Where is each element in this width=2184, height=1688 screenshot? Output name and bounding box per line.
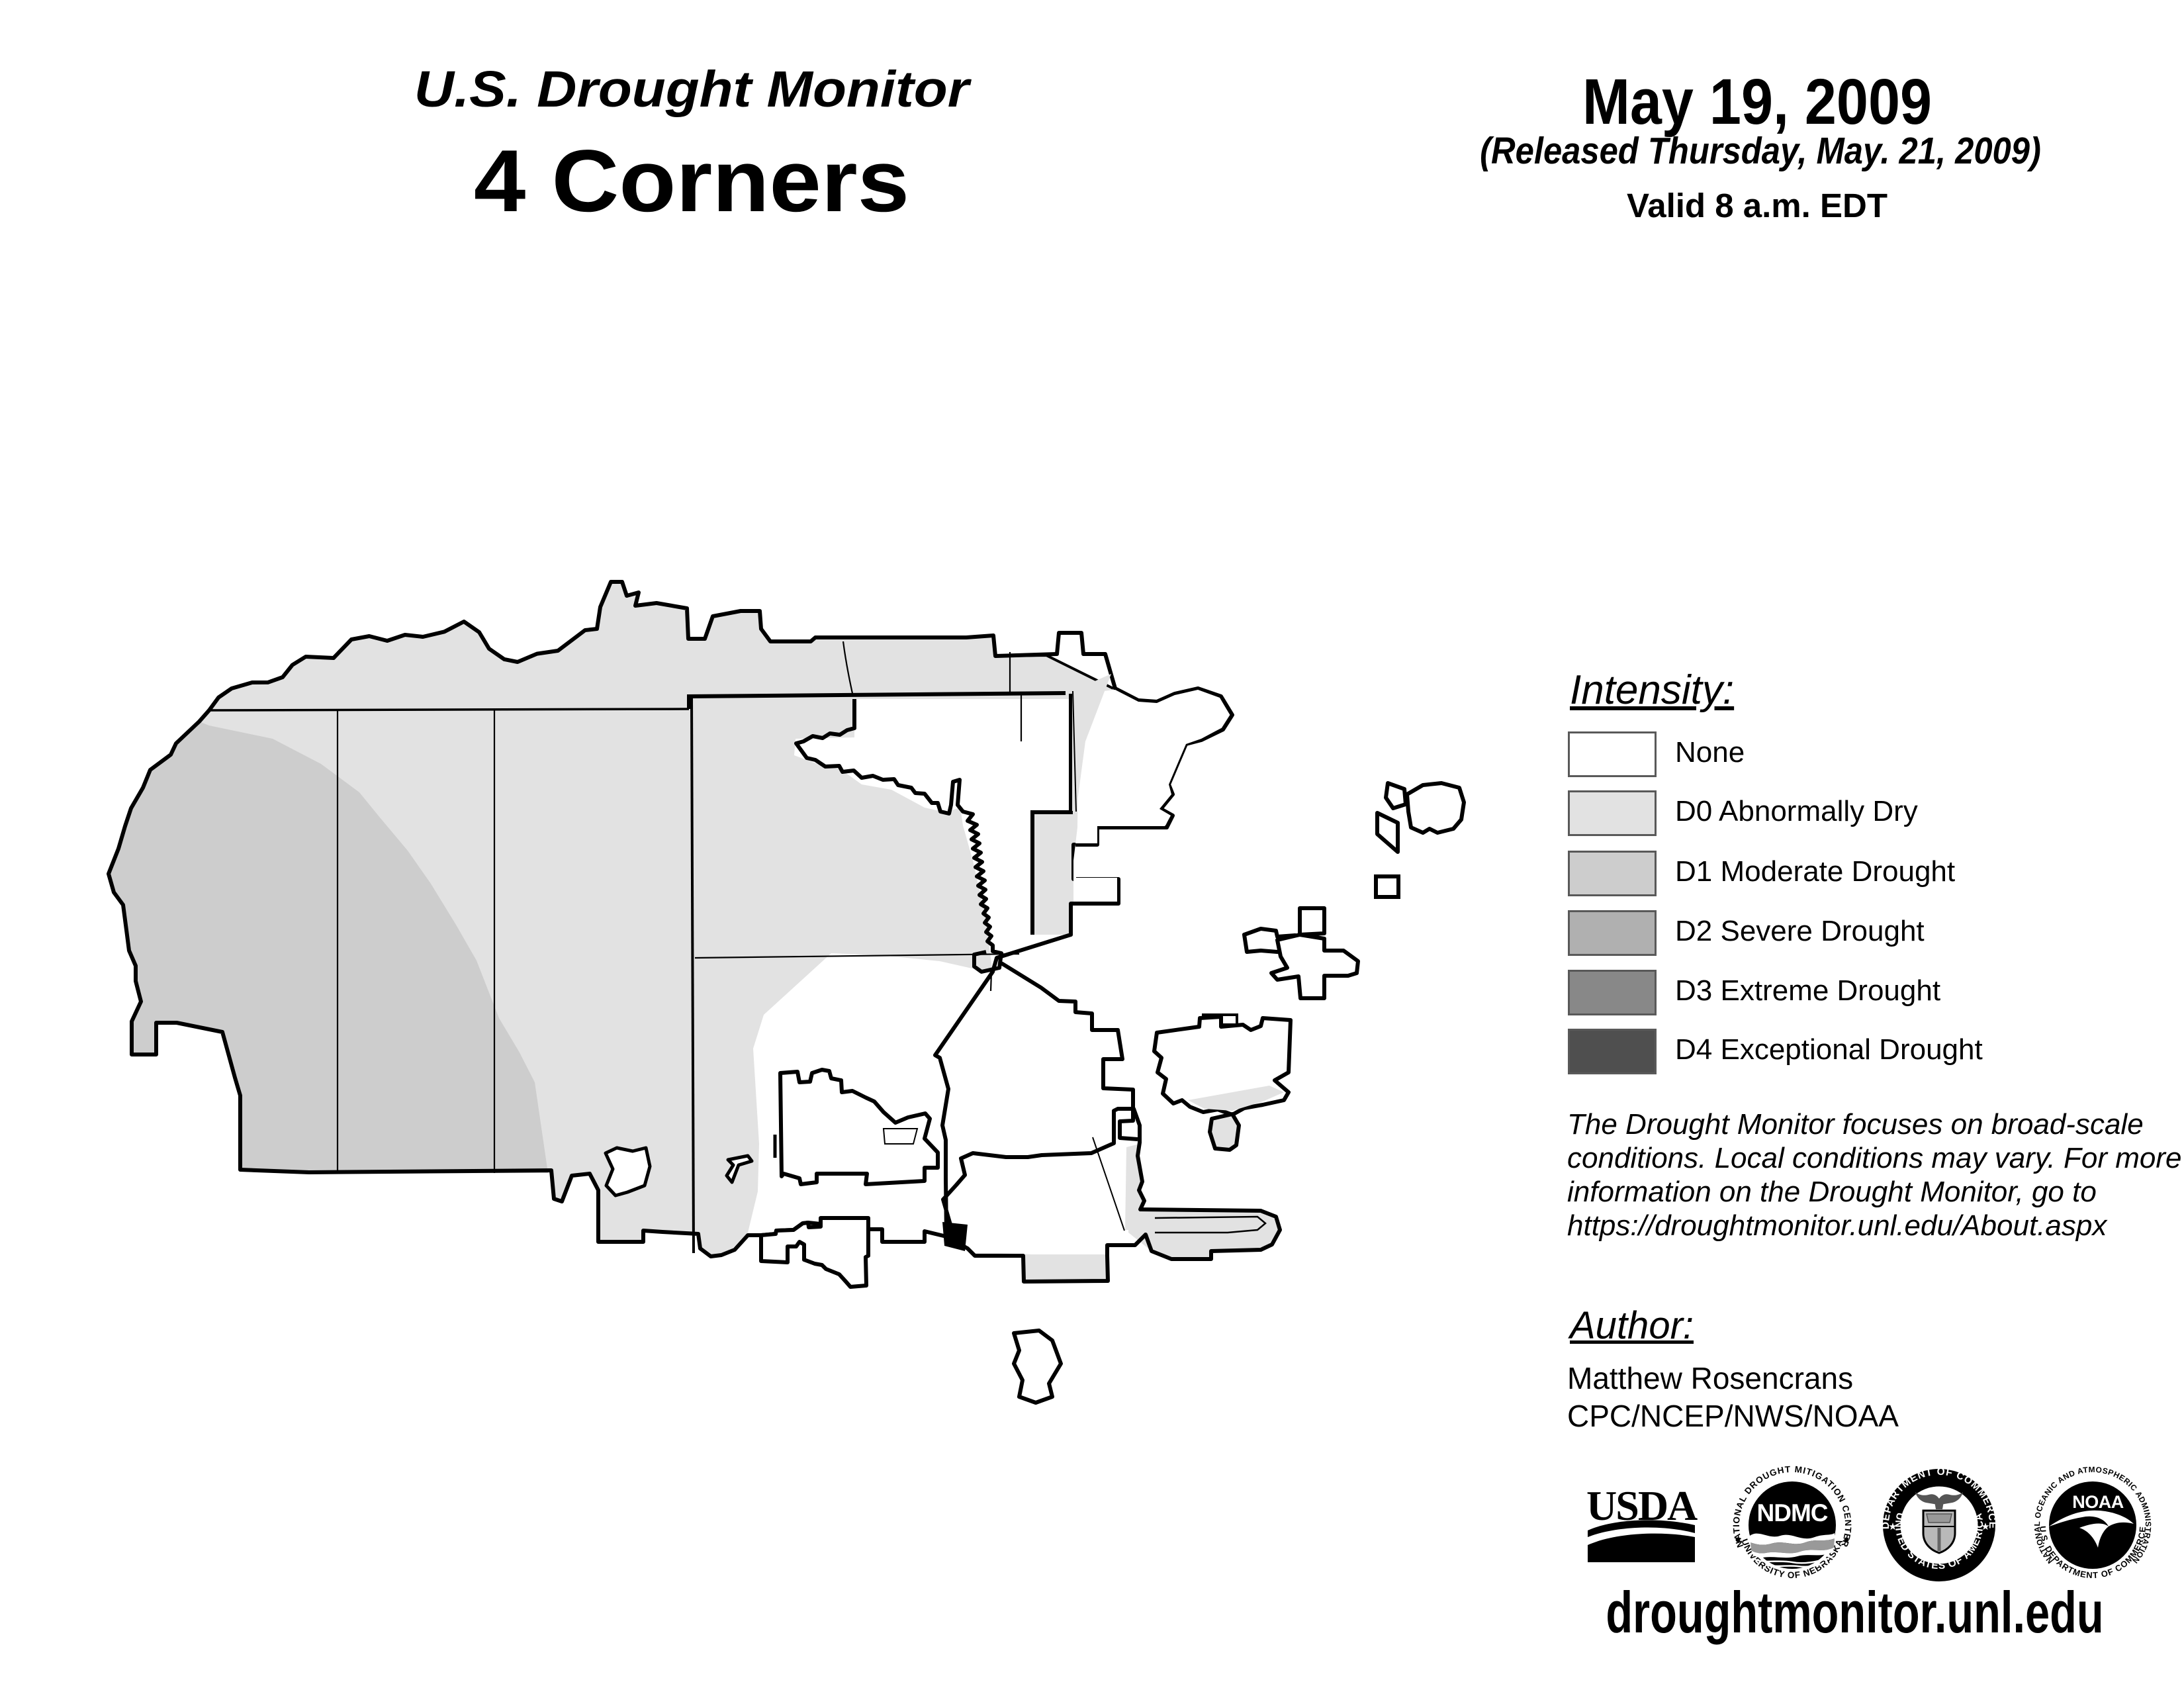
- svg-text:NDMC: NDMC: [1757, 1499, 1828, 1526]
- svg-text:★: ★: [1981, 1521, 1989, 1532]
- svg-text:★: ★: [1888, 1521, 1897, 1532]
- svg-text:NOAA: NOAA: [2072, 1492, 2124, 1512]
